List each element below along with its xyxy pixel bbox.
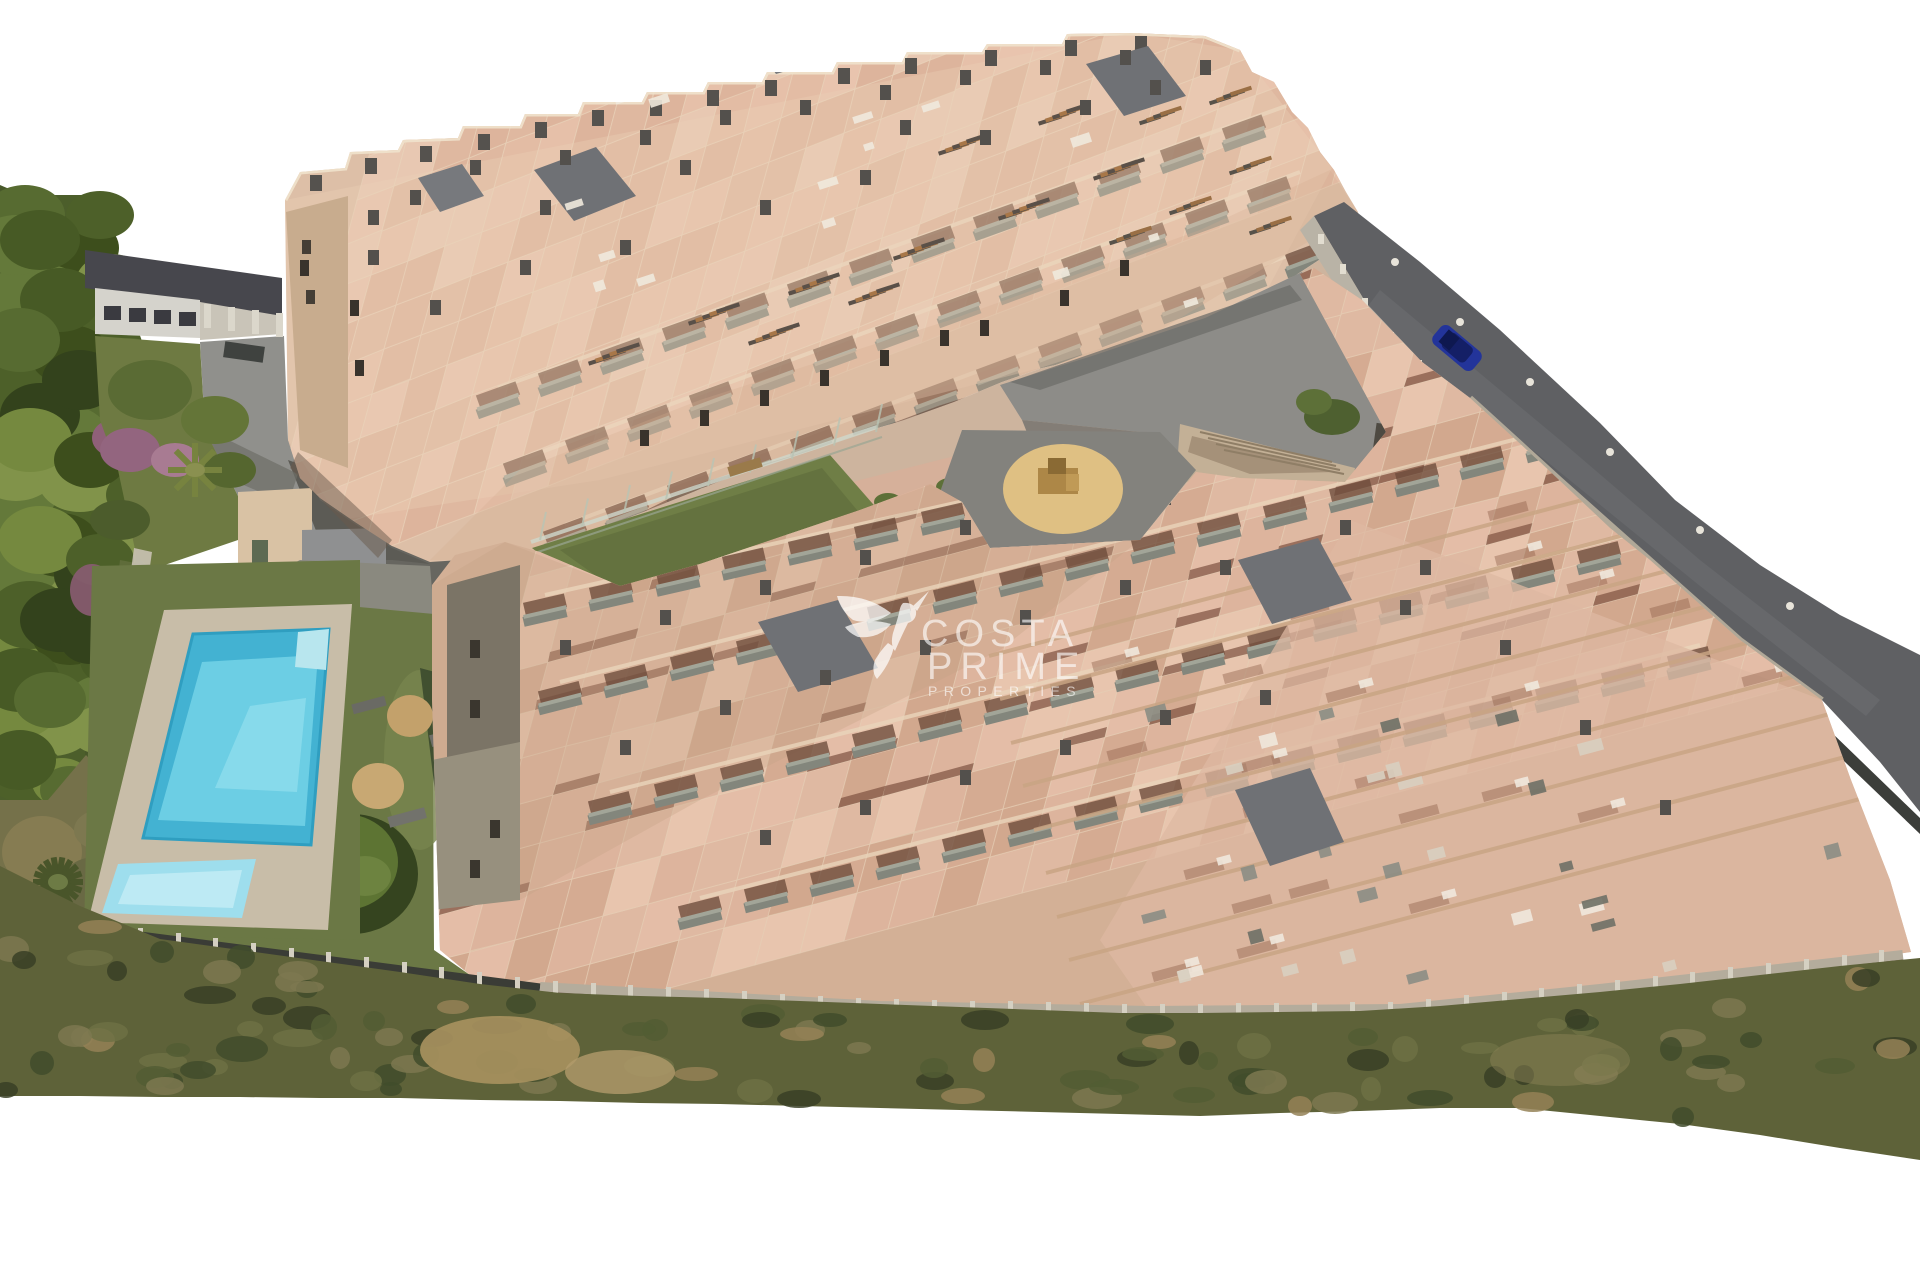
svg-text:PROPERTIES: PROPERTIES [928,683,1082,699]
svg-text:PRIME: PRIME [927,646,1087,688]
